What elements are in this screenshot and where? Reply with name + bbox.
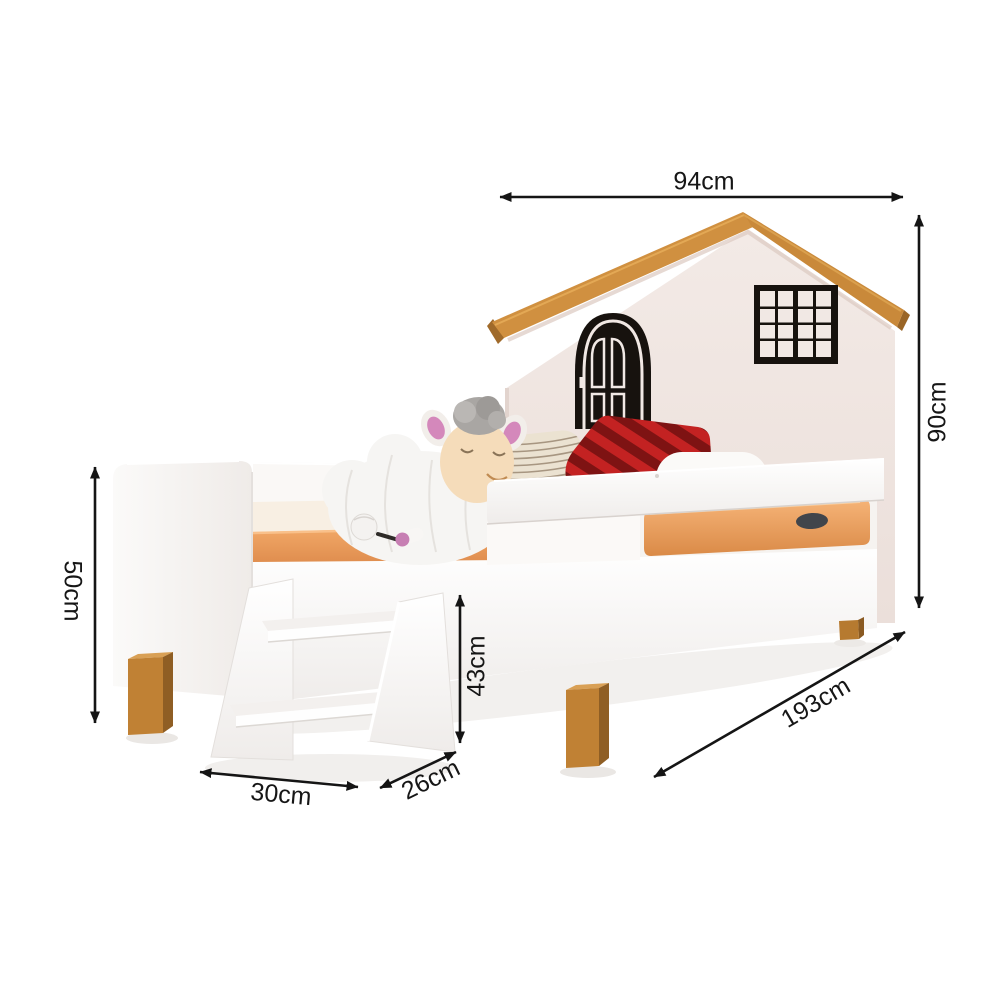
- product-dimension-diagram: 94cm 90cm 50cm 43cm 30cm 26cm 193cm: [0, 0, 1000, 1000]
- wooden-leg-center: [566, 683, 609, 768]
- wooden-leg-front-left: [128, 652, 173, 735]
- label-headboard-width: 94cm: [673, 170, 734, 195]
- door-handle: [580, 377, 584, 388]
- label-headboard-height: 90cm: [926, 381, 951, 442]
- toy-ball: [351, 514, 377, 540]
- door-decal: [575, 313, 651, 429]
- label-footboard-height: 50cm: [60, 560, 85, 621]
- label-stool-width: 30cm: [249, 780, 312, 810]
- product-illustration: [0, 0, 1000, 1000]
- label-stool-height: 43cm: [465, 635, 490, 696]
- window-decal: [754, 285, 838, 364]
